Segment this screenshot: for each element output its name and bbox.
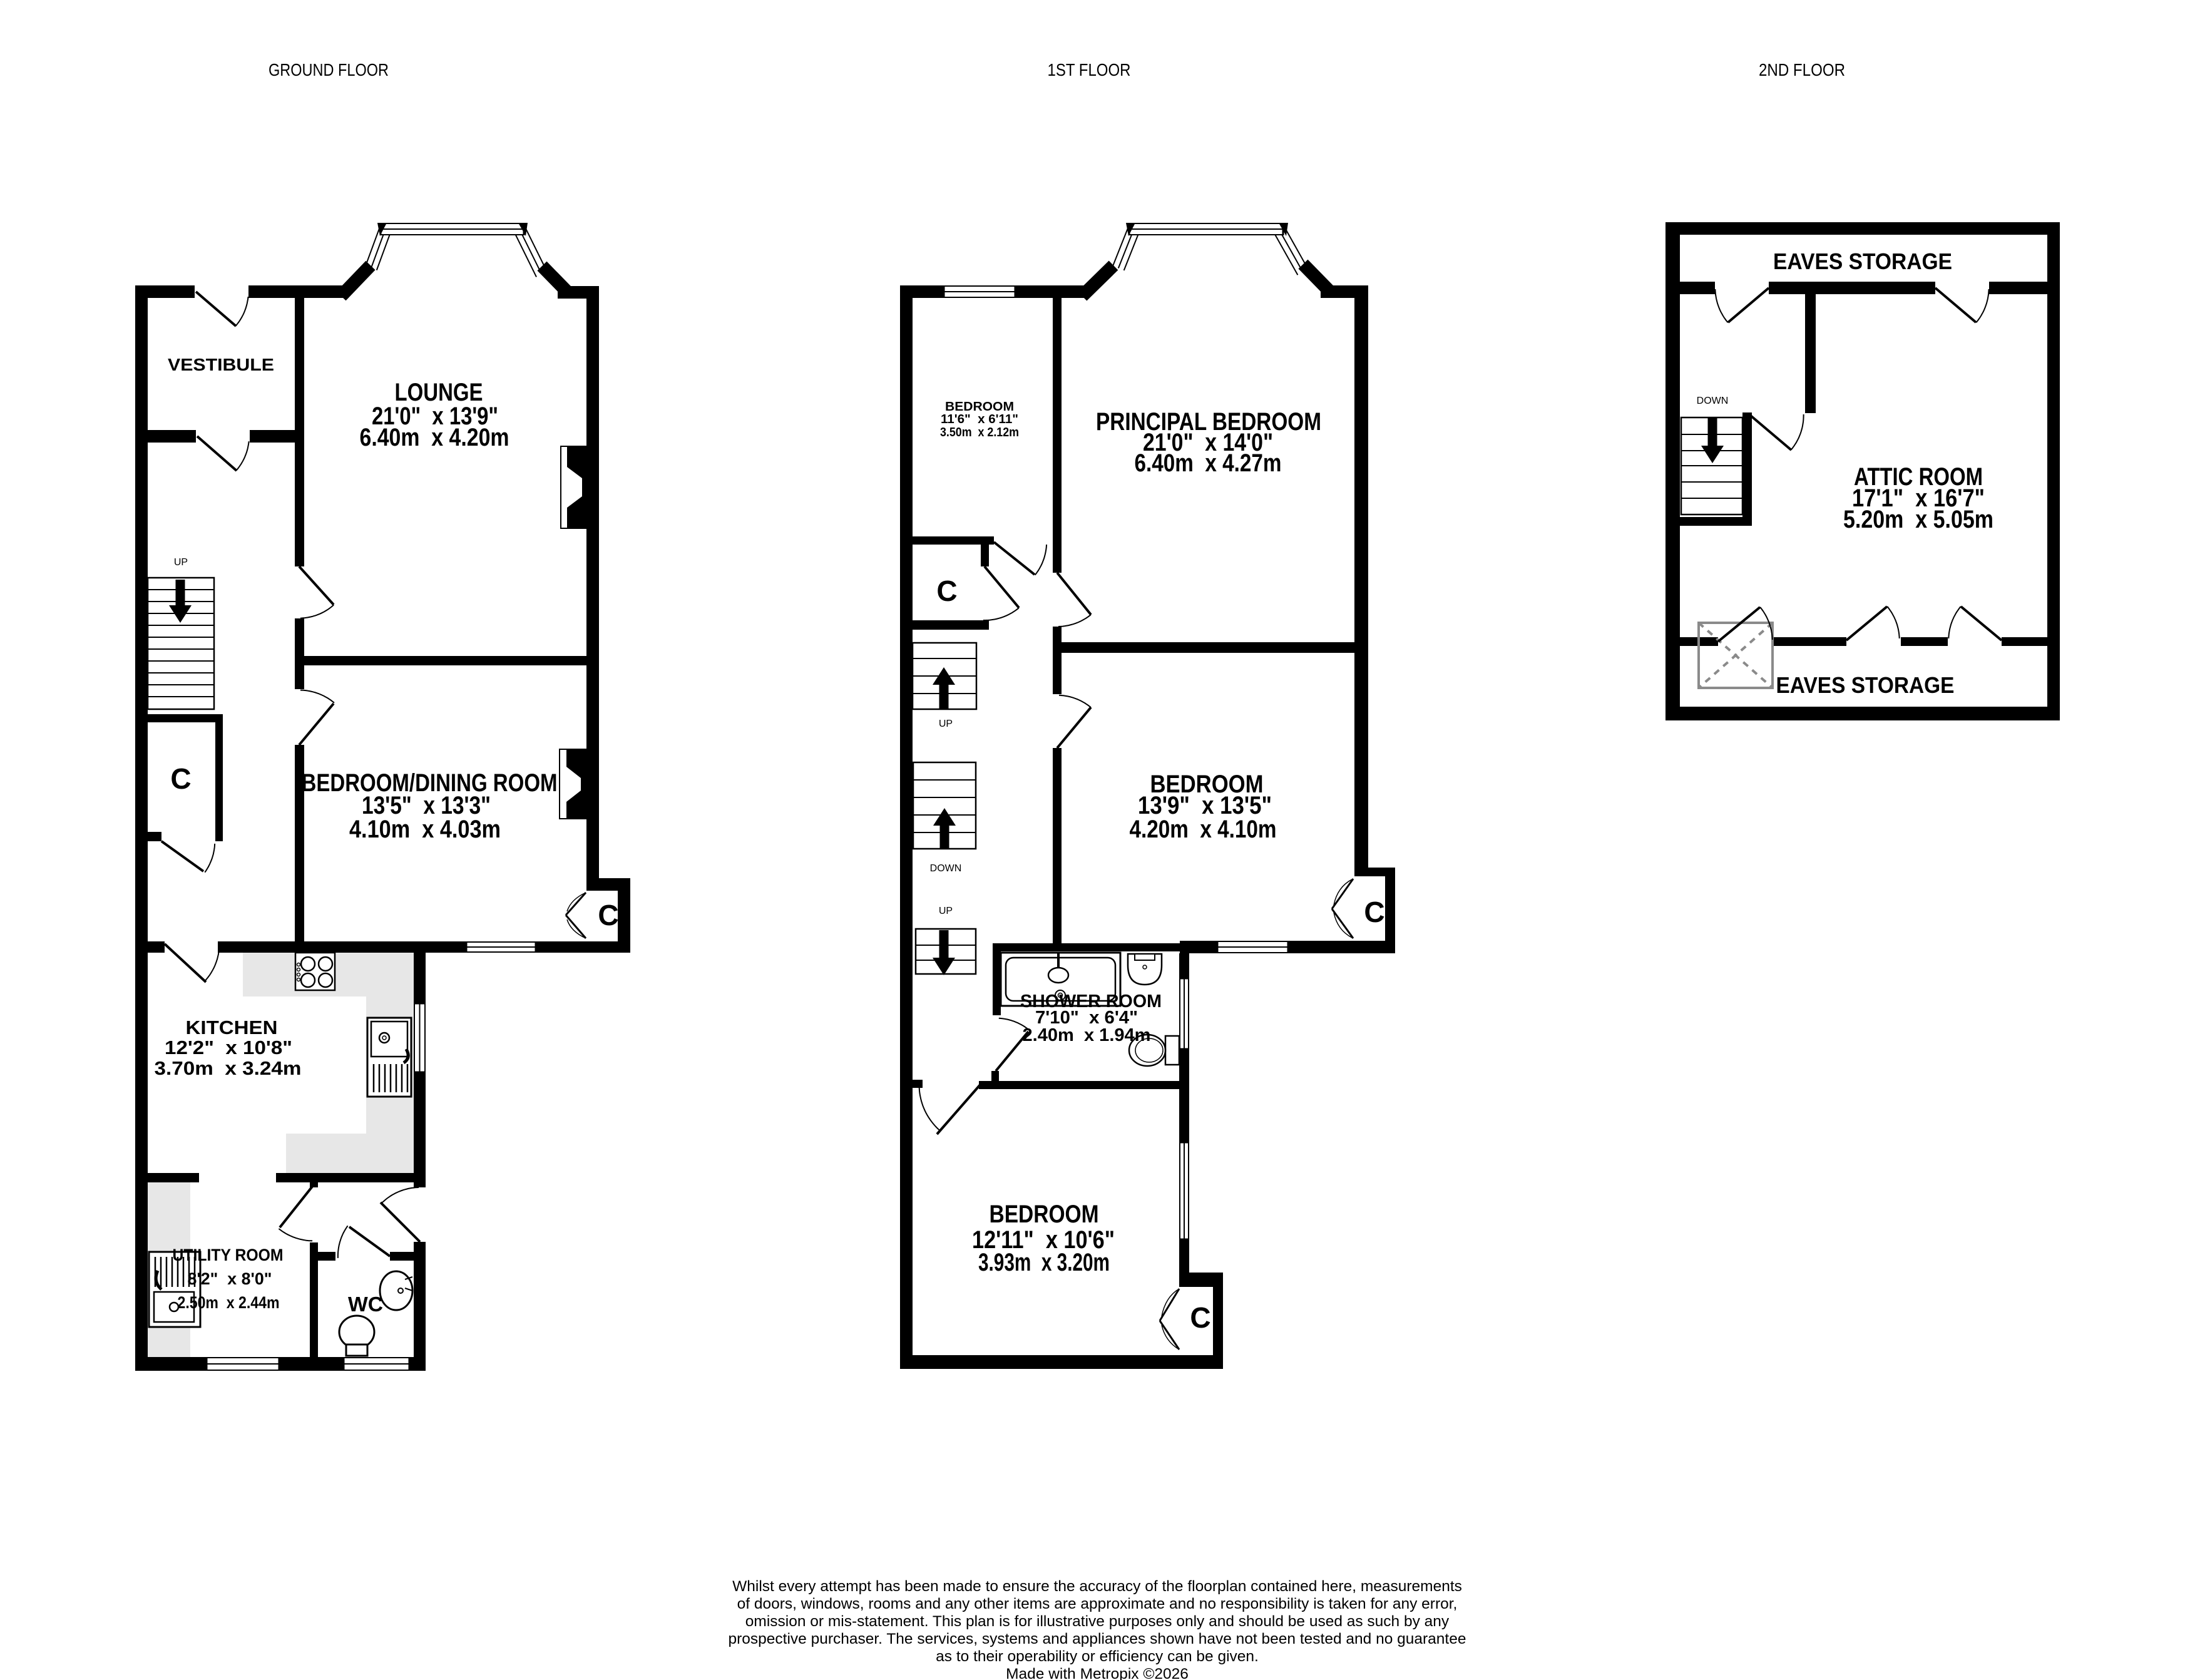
svg-text:2.40m x 1.94m: 2.40m x 1.94m (1023, 1025, 1151, 1045)
svg-text:C: C (170, 762, 191, 795)
svg-text:4.20m x 4.10m: 4.20m x 4.10m (1130, 816, 1277, 843)
svg-text:BEDROOM: BEDROOM (990, 1201, 1099, 1228)
svg-text:C: C (1364, 896, 1384, 928)
svg-text:C: C (936, 575, 957, 607)
svg-text:prospective purchaser. The ser: prospective purchaser. The services, sys… (728, 1631, 1466, 1647)
svg-text:4.10m x 4.03m: 4.10m x 4.03m (349, 816, 501, 843)
svg-text:EAVES STORAGE: EAVES STORAGE (1773, 248, 1952, 274)
svg-text:DOWN: DOWN (930, 863, 962, 874)
svg-text:2ND FLOOR: 2ND FLOOR (1759, 60, 1845, 79)
svg-text:6.40m x 4.20m: 6.40m x 4.20m (360, 424, 509, 451)
svg-text:BEDROOM: BEDROOM (945, 400, 1014, 414)
svg-text:GROUND FLOOR: GROUND FLOOR (269, 60, 389, 79)
svg-text:of doors, windows, rooms and a: of doors, windows, rooms and any other i… (737, 1595, 1458, 1612)
svg-text:3.93m x 3.20m: 3.93m x 3.20m (978, 1249, 1110, 1276)
svg-text:UP: UP (939, 906, 953, 916)
svg-text:2.50m x 2.44m: 2.50m x 2.44m (178, 1293, 280, 1312)
svg-text:C: C (1190, 1301, 1210, 1334)
svg-text:EAVES STORAGE: EAVES STORAGE (1776, 672, 1955, 698)
svg-text:KITCHEN: KITCHEN (186, 1017, 278, 1038)
svg-text:VESTIBULE: VESTIBULE (168, 355, 274, 374)
svg-text:3.70m x 3.24m: 3.70m x 3.24m (155, 1057, 302, 1079)
svg-text:as to their operability or eff: as to their operability or efficiency ca… (936, 1648, 1259, 1665)
svg-text:Made with Metropix ©2026: Made with Metropix ©2026 (1006, 1666, 1189, 1680)
svg-text:6.40m x 4.27m: 6.40m x 4.27m (1135, 449, 1282, 477)
svg-text:UP: UP (939, 719, 953, 729)
svg-text:WC: WC (348, 1293, 383, 1316)
svg-text:omission or mis-statement. Thi: omission or mis-statement. This plan is … (745, 1613, 1450, 1630)
svg-text:12'2" x 10'8": 12'2" x 10'8" (165, 1037, 292, 1058)
svg-text:UTILITY ROOM: UTILITY ROOM (173, 1246, 284, 1264)
svg-text:3.50m x 2.12m: 3.50m x 2.12m (940, 426, 1019, 439)
svg-text:1ST FLOOR: 1ST FLOOR (1048, 60, 1131, 79)
svg-text:DOWN: DOWN (1697, 396, 1729, 406)
svg-text:UP: UP (174, 557, 188, 568)
svg-text:C: C (598, 899, 618, 931)
svg-text:11'6" x 6'11": 11'6" x 6'11" (941, 412, 1018, 426)
svg-text:5.20m x 5.05m: 5.20m x 5.05m (1843, 506, 1993, 533)
svg-text:Whilst every attempt has been: Whilst every attempt has been made to en… (732, 1578, 1462, 1595)
svg-text:8'2" x 8'0": 8'2" x 8'0" (188, 1269, 272, 1288)
